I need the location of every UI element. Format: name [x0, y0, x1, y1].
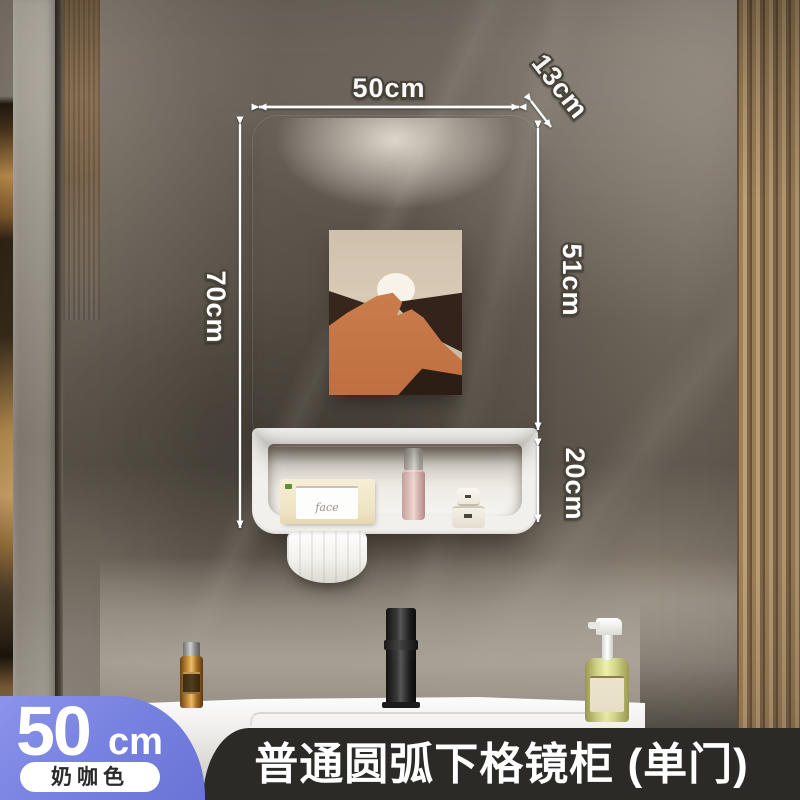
size-number: 50: [16, 698, 90, 764]
dimension-annotations: 50cm 13cm 70cm 51cm 20cm: [0, 0, 800, 800]
product-title-bar: 普通圆弧下格镜柜 (单门): [203, 728, 800, 800]
product-image: face 50cm 13cm 7: [0, 0, 800, 800]
mirror-height-label: 51cm: [557, 243, 587, 316]
height-label: 70cm: [201, 270, 231, 343]
color-name-pill: 奶咖色: [20, 762, 160, 792]
width-label: 50cm: [352, 73, 425, 103]
depth-arrow: [531, 101, 551, 127]
depth-label: 13cm: [526, 48, 595, 124]
shelf-height-label: 20cm: [560, 447, 590, 520]
product-title: 普通圆弧下格镜柜 (单门): [203, 728, 800, 800]
size-unit: cm: [108, 720, 163, 764]
